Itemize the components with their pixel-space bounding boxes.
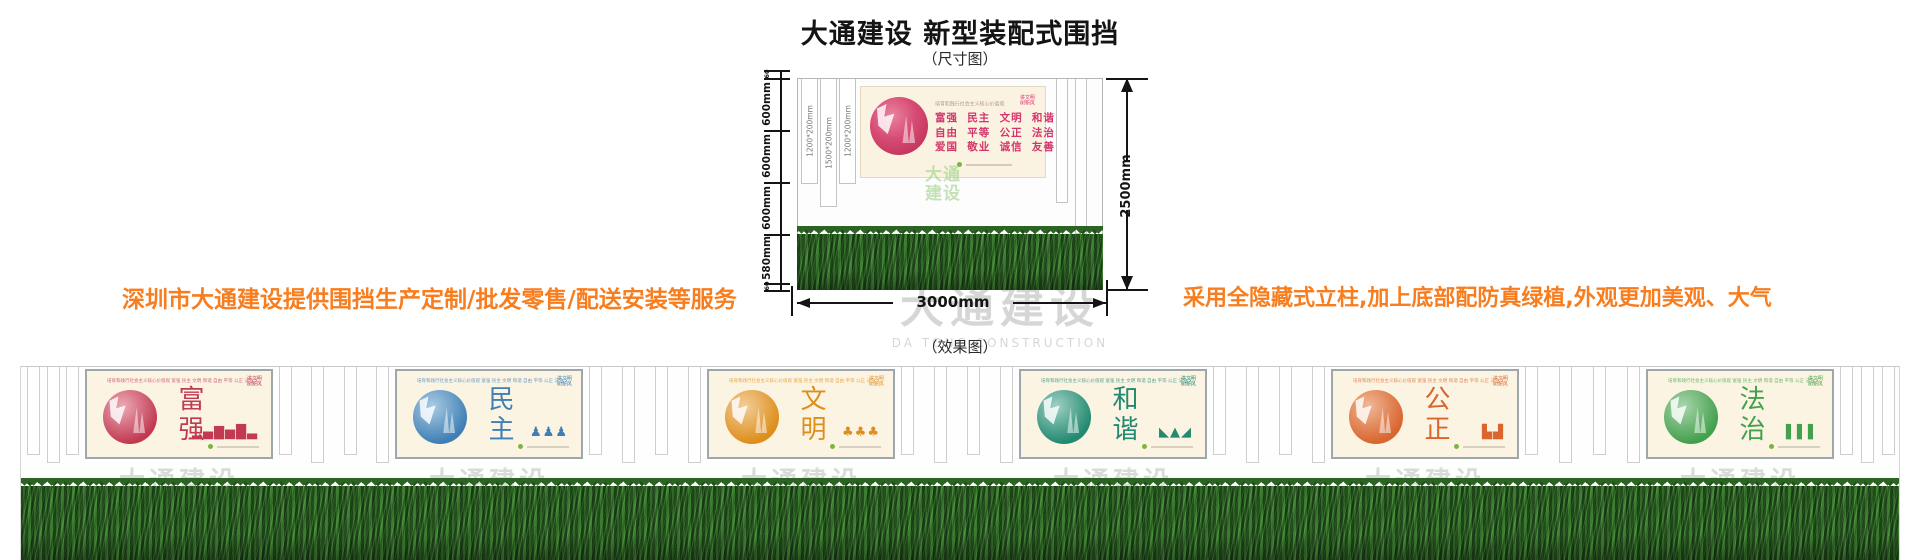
open-book-icon: ▙▟ [1482,425,1504,440]
post-1500: 1500*200mm [820,79,837,207]
fence-post-strip [1627,367,1640,463]
panel-corner-text: 讲文明 树新风 [869,376,893,387]
post-size-label: 1500*200mm [824,117,833,169]
fence-post-strip [1279,367,1292,455]
panel-footer-bar [217,446,259,448]
panel-header-text: 培育和践行社会主义核心价值观 富强 民主 文明 和谐 自由 平等 公正 法治 爱… [1668,377,1818,384]
dim-line-3000-left [797,302,893,304]
total-height-label: 2500mm [1117,136,1137,236]
value-panel-2: 培育和践行社会主义核心价值观 富强 民主 文明 和谐 自由 平等 公正 法治 爱… [395,369,583,459]
fence-post-strip [1882,367,1895,455]
panel-corner-text: 讲文明 树新风 [247,376,271,387]
panel-title: 和谐 [1105,385,1142,453]
trees-icon: ♣♣♣ [842,425,880,440]
fence-post-strip [66,367,79,455]
fence-post-strip [1213,367,1226,455]
paper-cut-circle-art [870,97,928,155]
fence-post-strip [1246,367,1259,463]
post-1200b: 1200*200mm [839,79,856,184]
people-figures-circle-art [413,390,467,444]
panel-title: 民主 [481,385,518,453]
fence-post-strip [47,367,60,463]
arrow-left-icon [797,298,810,308]
panel-corner-text: 讲文明 树新风 [1493,376,1517,387]
panel-header-text: 培育和践行社会主义核心价值观 富强 民主 文明 和谐 自由 平等 公正 法治 爱… [1041,377,1191,384]
fence-post-strip [376,367,389,463]
post-size-label: 1200*200mm [805,105,814,157]
panel-header-text: 培育和践行社会主义核心价值观 富强 民主 文明 和谐 自由 平等 公正 法治 爱… [729,377,879,384]
city-skyline-icon: ▂▄▇▅█▃ [192,425,258,440]
fence-post-strip [1593,367,1606,455]
panel-footer-bar [1463,446,1505,448]
bamboo-circle-art [1664,390,1718,444]
city-skyline-circle-art [103,390,157,444]
dimension-diagram-caption: （尺寸图） [0,48,1920,69]
page-title: 大通建设 新型装配式围挡 [0,12,1920,51]
panel-footer-bar [1778,446,1820,448]
green-dot-icon [518,444,523,449]
value-panel-5: 培育和践行社会主义核心价值观 富强 民主 文明 和谐 自由 平等 公正 法治 爱… [1331,369,1519,459]
panel-title: 公正 [1417,385,1454,453]
post-right-a [1056,79,1068,203]
panel-corner-text: 讲文明 树新风 [1808,376,1832,387]
people-figures-icon: ♟♟♟ [530,425,568,440]
panel-title: 文明 [793,385,830,453]
post-1200: 1200*200mm [801,79,818,184]
post-right-b [1075,79,1087,234]
arrow-up-icon [1121,78,1133,92]
segment-label: 600mm [760,78,774,130]
panel-corner-text: 讲文明 树新风 [557,376,581,387]
segment-label: 600mm [760,130,774,182]
open-book-circle-art [1349,390,1403,444]
fence-post-strip [1525,367,1538,455]
panel-header-text: 培育和践行社会主义核心价值观 富强 民主 文明 和谐 自由 平等 公正 法治 爱… [1353,377,1503,384]
fence-post-strip [1312,367,1325,463]
panel-header-text: 培育和践行社会主义核心价值观 富强 民主 文明 和谐 自由 平等 公正 法治 爱… [107,377,257,384]
right-tagline: 采用全隐藏式立柱,加上底部配防真绿植,外观更加美观、大气 [1183,280,1772,312]
effect-fence: 培育和践行社会主义核心价值观 富强 民主 文明 和谐 自由 平等 公正 法治 爱… [20,366,1900,560]
mountains-icon: ◣▲◢ [1159,425,1192,440]
panel-footer-bar [839,446,881,448]
fence-post-strip [311,367,324,463]
green-watermark: 大通 建设 [925,166,961,204]
banner-corner-text: 讲文明 树新风 [1020,95,1044,106]
poster: 大通建设 新型装配式围挡 （尺寸图） 深圳市大通建设提供围挡生产定制/批发零售/… [0,0,1920,560]
green-dot-icon [1769,444,1774,449]
effect-diagram-caption: （效果图） [0,336,1920,357]
fence-post-strip [279,367,292,455]
panel-header-text: 培育和践行社会主义核心价值观 富强 民主 文明 和谐 自由 平等 公正 法治 爱… [417,377,567,384]
trees-circle-art [725,390,779,444]
fence-post-strip [934,367,947,463]
value-panel-1: 培育和践行社会主义核心价值观 富强 民主 文明 和谐 自由 平等 公正 法治 爱… [85,369,273,459]
ext-line-left [791,286,793,316]
panel-title: 法治 [1732,385,1769,453]
segment-label: 600mm [760,182,774,234]
fence-post-strip [688,367,701,463]
green-dot-icon [208,444,213,449]
height-ruler: 60 600mm 600mm 600mm 580mm 60 [754,70,792,292]
fence-post-strip [1861,367,1874,463]
value-panel-3: 培育和践行社会主义核心价值观 富强 民主 文明 和谐 自由 平等 公正 法治 爱… [707,369,895,459]
panel-title: 富强 [171,385,208,453]
panel-footer-bar [527,446,569,448]
core-values-text: 富强 民主 文明 和谐自由 平等 公正 法治爱国 敬业 诚信 友善 [935,111,1055,155]
arrow-right-icon [1093,298,1106,308]
fence-post-strip [967,367,980,455]
diagram-grass-hedge [797,234,1103,290]
fence-post-strip [901,367,914,455]
fence-post-strip [589,367,602,455]
segment-label: 60 [762,276,772,296]
value-panel-6: 培育和践行社会主义核心价值观 富强 民主 文明 和谐 自由 平等 公正 法治 爱… [1646,369,1834,459]
fence-post-strip [1559,367,1572,463]
effect-grass-hedge [20,486,1900,560]
total-width-label: 3000mm [893,293,1013,311]
fence-post-strip [1840,367,1853,455]
banner-footer-bar [966,164,1012,166]
fence-post-strip [1000,367,1013,463]
fence-post-strip [655,367,668,455]
fence-post-strip [622,367,635,463]
panel-footer-bar [1151,446,1193,448]
fence-post-strip [344,367,357,455]
green-dot-icon [1142,444,1147,449]
mountains-circle-art [1037,390,1091,444]
fence-post-strip [27,367,40,455]
panel-corner-text: 讲文明 树新风 [1181,376,1205,387]
ruler-line [780,70,782,292]
post-size-label: 1200*200mm [843,105,852,157]
value-panel-4: 培育和践行社会主义核心价值观 富强 民主 文明 和谐 自由 平等 公正 法治 爱… [1019,369,1207,459]
bamboo-icon: ▌▌▌ [1786,425,1819,440]
green-dot-icon [1454,444,1459,449]
green-dot-icon [830,444,835,449]
left-tagline: 深圳市大通建设提供围挡生产定制/批发零售/配送安装等服务 [122,280,737,314]
